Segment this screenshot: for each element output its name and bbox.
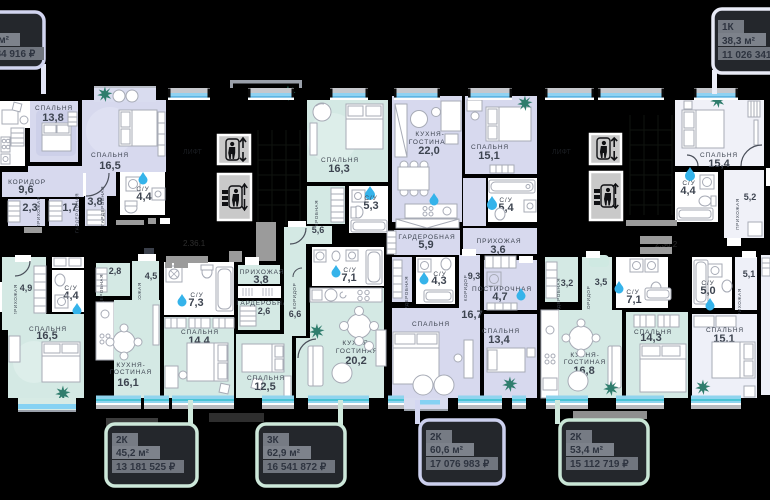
svg-text:ГАРДЕРОБНАЯ: ГАРДЕРОБНАЯ (100, 186, 105, 226)
svg-text:4,3: 4,3 (431, 275, 446, 287)
svg-text:4,4: 4,4 (136, 191, 152, 203)
svg-text:9,6: 9,6 (18, 184, 33, 196)
svg-text:14,3: 14,3 (640, 332, 661, 344)
svg-text:5,3: 5,3 (363, 200, 378, 212)
svg-text:22,0: 22,0 (418, 145, 439, 157)
svg-text:62,9 м²: 62,9 м² (267, 448, 301, 459)
svg-text:13 181 525 ₽: 13 181 525 ₽ (116, 462, 176, 473)
svg-text:12,5: 12,5 (254, 381, 275, 393)
svg-text:62,5 м²: 62,5 м² (0, 35, 10, 46)
svg-text:16 541 872 ₽: 16 541 872 ₽ (267, 462, 327, 473)
svg-text:ГАРДЕРОБНАЯ: ГАРДЕРОБНАЯ (75, 193, 80, 233)
svg-text:5,1: 5,1 (743, 269, 756, 279)
svg-text:ЛИФТ: ЛИФТ (552, 149, 572, 156)
svg-text:17 384 916 ₽: 17 384 916 ₽ (0, 49, 36, 60)
svg-text:53,4 м²: 53,4 м² (570, 445, 604, 456)
svg-text:2К: 2К (430, 432, 443, 443)
svg-text:38,3 м²: 38,3 м² (722, 36, 756, 47)
svg-text:5,2: 5,2 (744, 192, 757, 202)
svg-text:16,5: 16,5 (99, 160, 120, 172)
svg-text:ПРИХОЖАЯ: ПРИХОЖАЯ (36, 196, 41, 227)
svg-text:3,6: 3,6 (490, 244, 505, 256)
svg-text:16,1: 16,1 (117, 377, 138, 389)
svg-text:45,2 м²: 45,2 м² (116, 448, 150, 459)
svg-text:15,4: 15,4 (708, 158, 730, 170)
svg-text:СПАЛЬНЯ: СПАЛЬНЯ (35, 105, 73, 112)
svg-text:3,2: 3,2 (561, 278, 574, 288)
svg-text:ПРИХОЖАЯ: ПРИХОЖАЯ (735, 198, 740, 229)
svg-text:СПАЛЬНЯ: СПАЛЬНЯ (91, 152, 129, 159)
svg-text:5,9: 5,9 (418, 239, 433, 251)
svg-text:15,1: 15,1 (478, 150, 499, 162)
svg-text:1К: 1К (722, 22, 735, 33)
svg-text:ГОСТИНАЯ: ГОСТИНАЯ (110, 369, 152, 376)
svg-text:ЛИФТ: ЛИФТ (183, 149, 203, 156)
svg-text:3,5: 3,5 (595, 277, 608, 287)
svg-text:3К: 3К (267, 435, 280, 446)
svg-text:2К: 2К (116, 435, 129, 446)
svg-text:2К: 2К (570, 432, 583, 443)
svg-text:КОРИДОР: КОРИДОР (586, 286, 591, 313)
svg-text:2,6: 2,6 (258, 306, 271, 316)
svg-text:4,5: 4,5 (145, 271, 158, 281)
svg-text:7,1: 7,1 (626, 294, 641, 306)
svg-text:17 076 983 ₽: 17 076 983 ₽ (430, 459, 490, 470)
svg-text:3,8: 3,8 (253, 274, 268, 286)
svg-text:16,5: 16,5 (36, 330, 57, 342)
svg-text:13,4: 13,4 (488, 334, 510, 346)
svg-text:16,7: 16,7 (461, 309, 482, 321)
svg-text:КОРИДОР: КОРИДОР (292, 283, 297, 310)
svg-text:4,7: 4,7 (492, 291, 507, 303)
svg-text:16,3: 16,3 (328, 163, 349, 175)
svg-text:2,8: 2,8 (109, 266, 122, 276)
svg-text:ПРИХОЖАЯ: ПРИХОЖАЯ (13, 284, 18, 315)
svg-text:КУХНЯ-: КУХНЯ- (116, 362, 145, 369)
svg-text:9,3: 9,3 (468, 271, 481, 281)
svg-text:2.36.1: 2.36.1 (183, 239, 206, 248)
svg-text:4,4: 4,4 (680, 185, 696, 197)
svg-text:7,3: 7,3 (188, 297, 203, 309)
svg-text:КУХНЯ-: КУХНЯ- (415, 131, 444, 138)
svg-text:4,9: 4,9 (20, 283, 33, 293)
svg-text:5,0: 5,0 (700, 285, 715, 297)
svg-text:13,8: 13,8 (42, 112, 63, 124)
svg-text:15 112 719 ₽: 15 112 719 ₽ (570, 459, 629, 470)
svg-text:60,6 м²: 60,6 м² (430, 445, 464, 456)
svg-text:СПАЛЬНЯ: СПАЛЬНЯ (412, 321, 450, 328)
svg-text:6,6: 6,6 (289, 309, 302, 319)
svg-text:11 026 341 ₽: 11 026 341 ₽ (722, 50, 770, 61)
svg-text:5,6: 5,6 (312, 225, 325, 235)
svg-text:7,1: 7,1 (341, 272, 356, 284)
